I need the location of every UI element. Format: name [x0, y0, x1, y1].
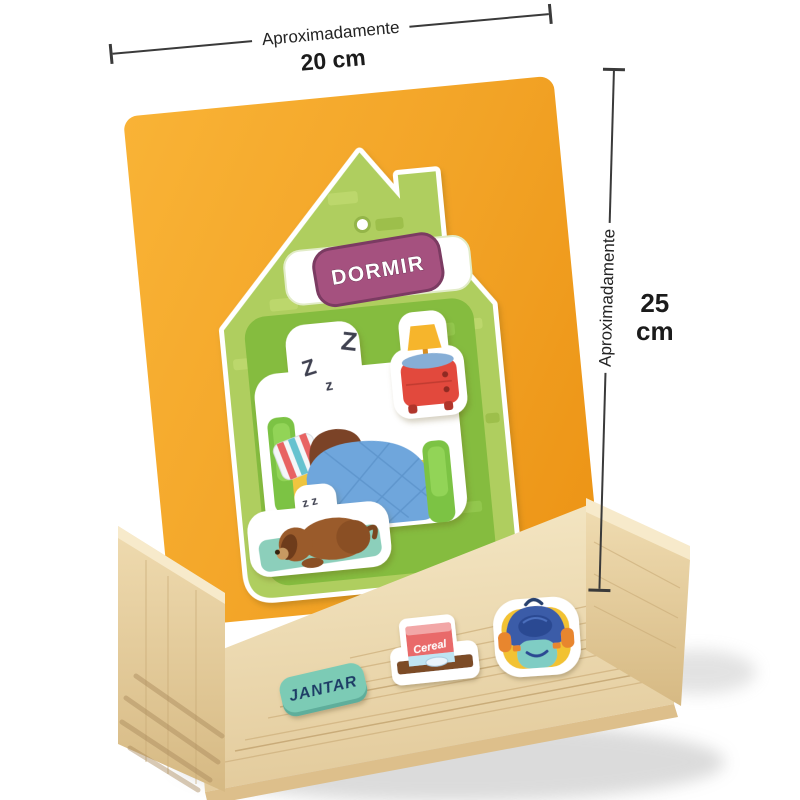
dimension-tick-bottom — [588, 588, 610, 592]
wooden-tray: JANTAR Cereal — [0, 0, 800, 800]
dimension-line — [608, 71, 615, 223]
product-photo: Aproximadamente 20 cm — [0, 0, 800, 800]
height-dimension-label: Aproximadamente — [595, 223, 619, 373]
height-dimension-value: 25 cm — [636, 290, 674, 345]
height-value: 25 — [636, 290, 674, 318]
dimension-line — [598, 373, 607, 589]
backpack-magnet — [491, 595, 582, 679]
height-unit: cm — [636, 318, 674, 346]
